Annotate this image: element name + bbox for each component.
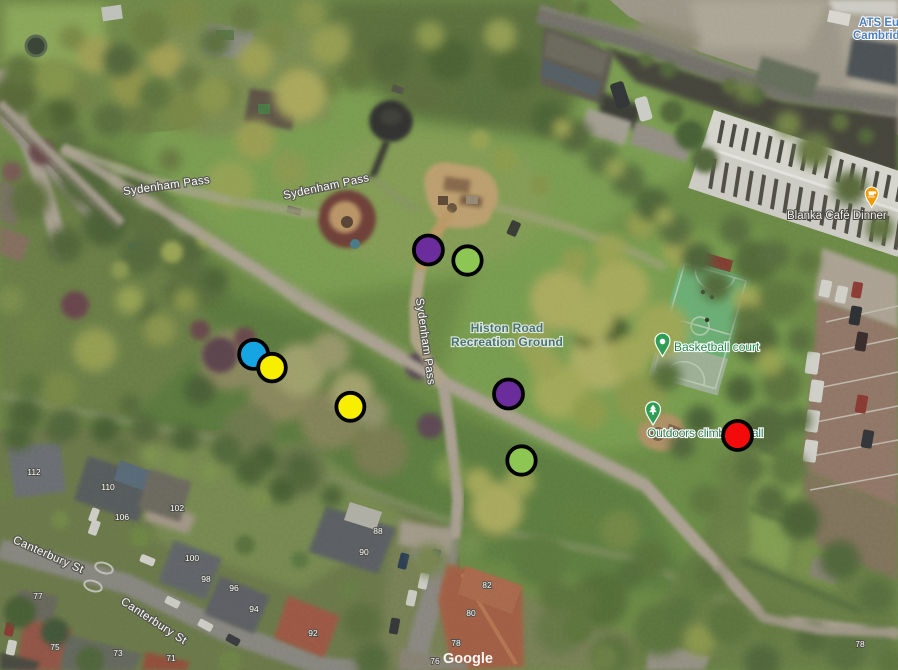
svg-text:77: 77 (33, 591, 43, 601)
svg-text:Blanka Café Dinner: Blanka Café Dinner (787, 210, 887, 222)
svg-text:80: 80 (466, 608, 476, 618)
svg-text:75: 75 (50, 642, 60, 652)
svg-text:88: 88 (373, 526, 383, 536)
svg-text:76: 76 (430, 656, 440, 666)
svg-text:110: 110 (101, 482, 115, 492)
svg-text:ATS Eur: ATS Eur (859, 17, 898, 29)
svg-text:112: 112 (27, 467, 41, 477)
svg-text:106: 106 (115, 512, 129, 522)
svg-text:82: 82 (482, 580, 492, 590)
svg-text:71: 71 (166, 653, 176, 663)
svg-text:100: 100 (185, 553, 199, 563)
svg-text:98: 98 (201, 574, 211, 584)
svg-text:73: 73 (113, 648, 123, 658)
svg-text:90: 90 (359, 547, 369, 557)
svg-text:102: 102 (170, 503, 184, 513)
svg-text:92: 92 (308, 628, 318, 638)
svg-text:Basketball court: Basketball court (674, 340, 760, 354)
svg-text:Recreation Ground: Recreation Ground (451, 335, 563, 349)
svg-text:78: 78 (855, 639, 865, 649)
svg-text:Cambridg: Cambridg (853, 30, 898, 42)
svg-text:78: 78 (451, 638, 461, 648)
svg-text:94: 94 (249, 604, 259, 614)
svg-text:Histon Road: Histon Road (471, 321, 544, 335)
svg-text:Google: Google (443, 651, 493, 667)
svg-text:96: 96 (229, 583, 239, 593)
